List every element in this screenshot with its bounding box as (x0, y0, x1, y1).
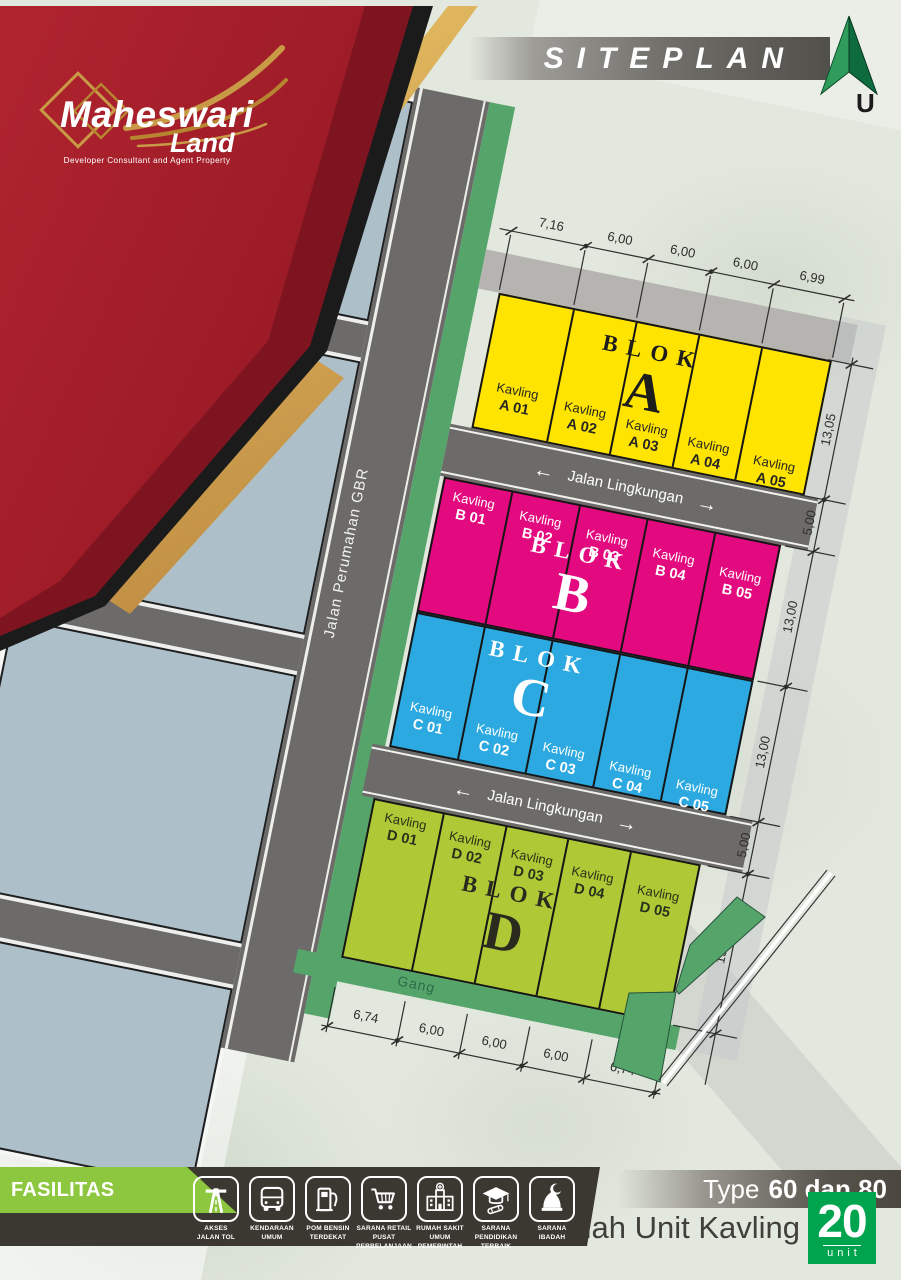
facility-education: SARANA PENDIDIKAN TERBAIK (472, 1176, 520, 1251)
page-title: SITEPLAN (544, 42, 796, 76)
facility-bus: KENDARAAN UMUM (248, 1176, 296, 1251)
mosque-icon (529, 1176, 575, 1222)
siteplan-title-bar: SITEPLAN (468, 37, 830, 80)
brand-logo: Maheswari Land Developer Consultant and … (0, 6, 480, 256)
hospital-icon (417, 1176, 463, 1222)
facility-retail: SARANA RETAIL PUSAT PERBELANJAAN (360, 1176, 408, 1251)
brand-subname: Land (170, 128, 235, 159)
shopping-cart-icon (361, 1176, 407, 1222)
type-label: Type (703, 1174, 759, 1205)
unit-count-value: 20 (817, 1198, 866, 1244)
facility-mosque: SARANA IBADAH (528, 1176, 576, 1251)
bus-icon (249, 1176, 295, 1222)
unit-word: unit (823, 1245, 861, 1259)
fuel-pump-icon (305, 1176, 351, 1222)
facilities-row: AKSES JALAN TOL KENDARAAN UMUM POM BENSI… (192, 1176, 576, 1251)
north-arrow: U (816, 14, 882, 123)
education-icon (473, 1176, 519, 1222)
toll-road-icon (193, 1176, 239, 1222)
unit-count-badge: 20 unit (808, 1192, 876, 1264)
facility-toll: AKSES JALAN TOL (192, 1176, 240, 1251)
facility-fuel: POM BENSIN TERDEKAT (304, 1176, 352, 1251)
brand-tagline: Developer Consultant and Agent Property (52, 156, 242, 165)
facility-hospital: RUMAH SAKIT UMUM PEMERINTAH (416, 1176, 464, 1251)
north-letter: U (856, 88, 875, 118)
